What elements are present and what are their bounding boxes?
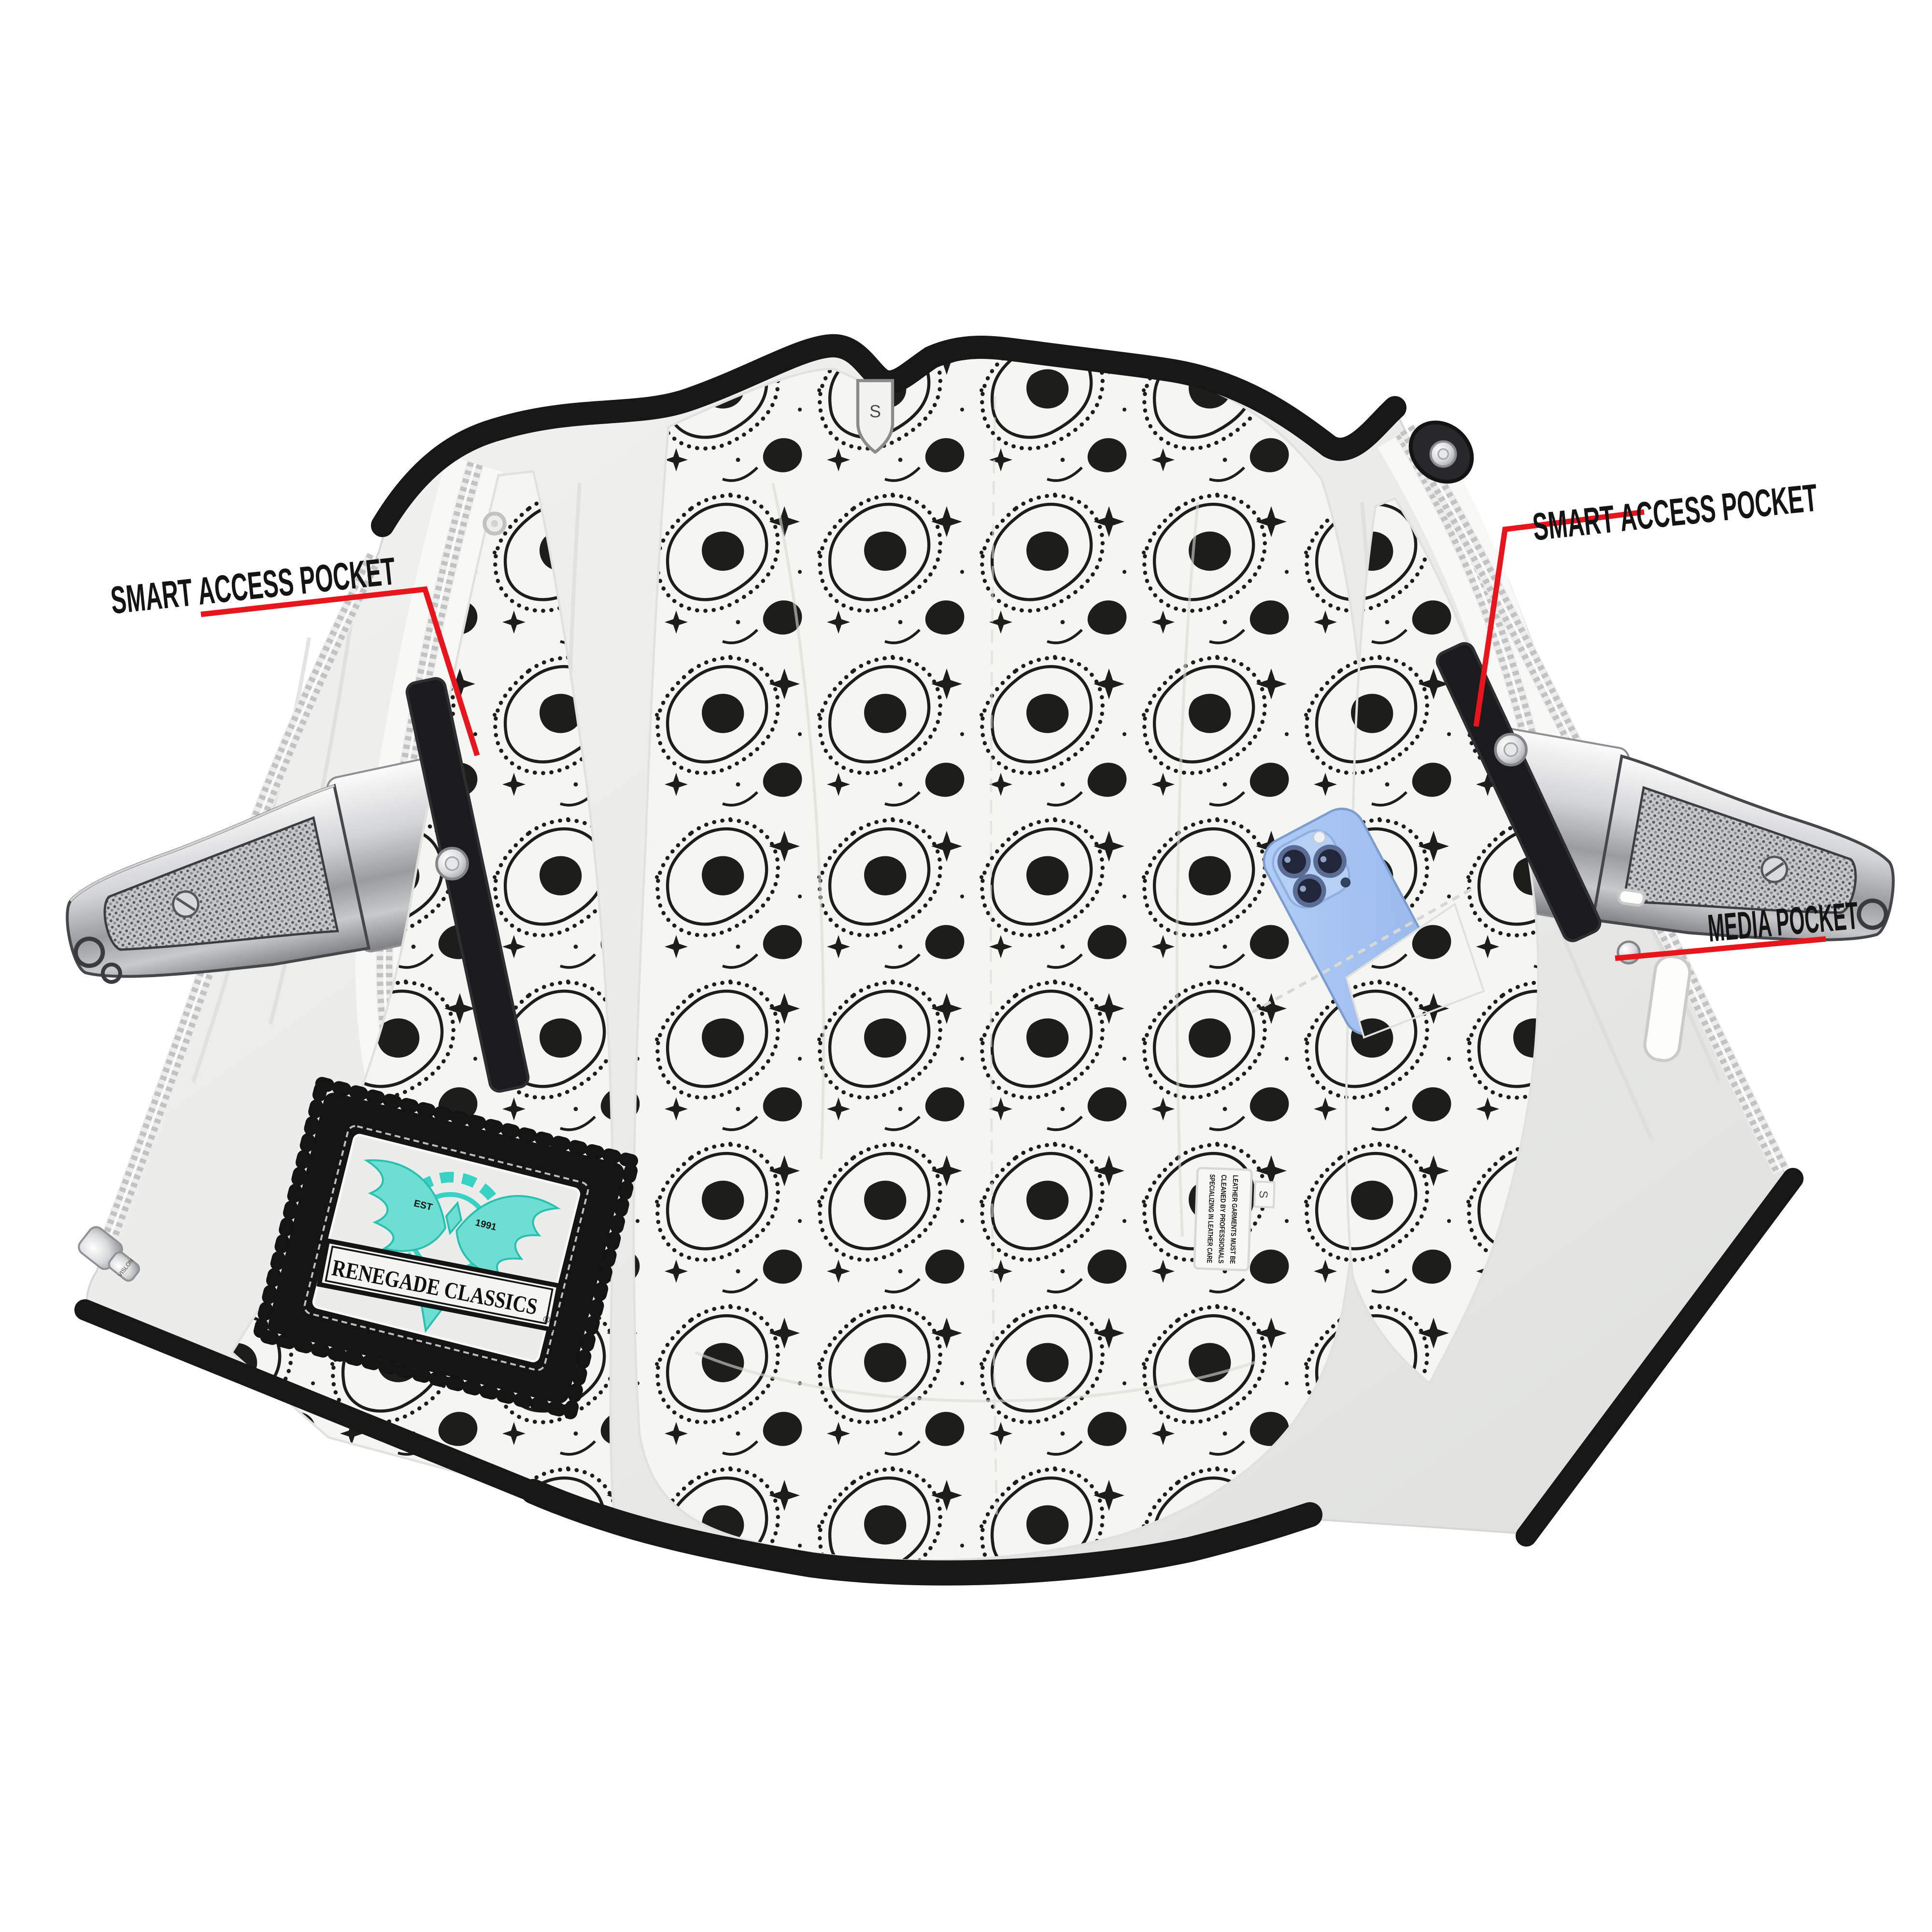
vest-illustration: VISLON S xyxy=(0,0,1932,1932)
size-tag: S xyxy=(858,381,893,452)
care-label-size: S xyxy=(1257,1190,1270,1198)
size-tag-letter: S xyxy=(869,401,881,421)
snap-socket xyxy=(484,513,505,534)
product-image: VISLON S xyxy=(0,0,1932,1932)
lining-back-panel xyxy=(634,355,1371,1561)
